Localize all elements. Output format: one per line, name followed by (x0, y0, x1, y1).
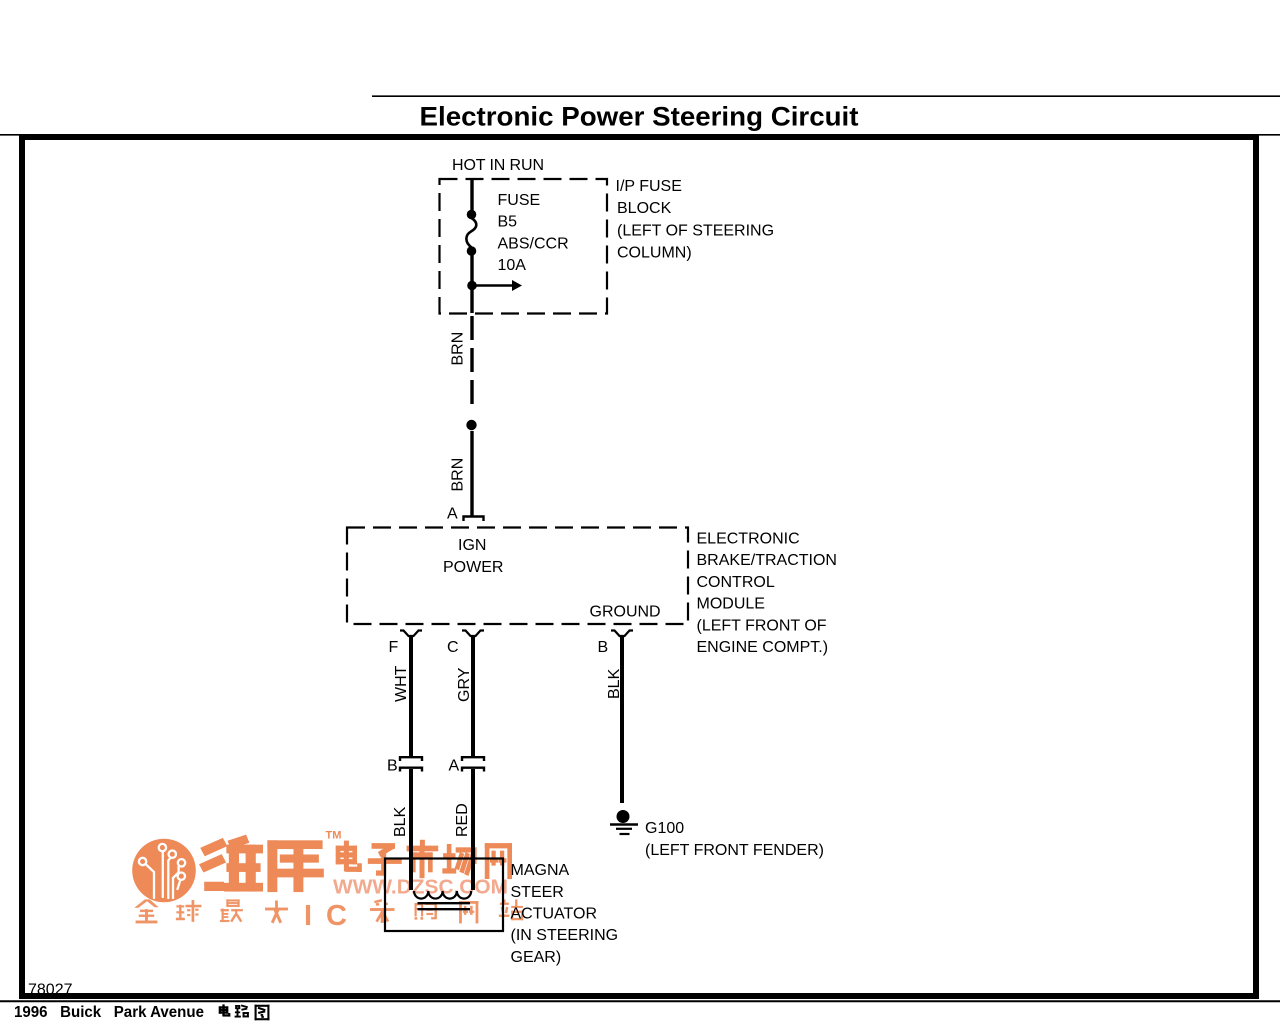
svg-text:Electronic Power Steering Circ: Electronic Power Steering Circuit (420, 102, 859, 132)
svg-text:GRY: GRY (456, 667, 473, 702)
svg-text:(LEFT FRONT FENDER): (LEFT FRONT FENDER) (645, 842, 824, 859)
svg-text:TM: TM (326, 830, 342, 842)
svg-text:78027: 78027 (28, 982, 73, 999)
svg-text:GROUND: GROUND (590, 603, 661, 620)
svg-text:POWER: POWER (443, 559, 503, 576)
svg-text:WWW.DZSC.COM: WWW.DZSC.COM (333, 876, 508, 899)
svg-text:BRAKE/TRACTION: BRAKE/TRACTION (697, 552, 837, 569)
svg-text:ABS/CCR: ABS/CCR (498, 235, 569, 252)
svg-text:I: I (304, 900, 312, 932)
svg-text:(LEFT OF STEERING: (LEFT OF STEERING (617, 222, 774, 239)
svg-text:B5: B5 (498, 214, 518, 231)
svg-text:B: B (387, 758, 398, 775)
svg-text:IGN: IGN (458, 537, 486, 554)
svg-text:ENGINE COMPT.): ENGINE COMPT.) (697, 639, 829, 656)
svg-text:MODULE: MODULE (697, 596, 765, 613)
svg-text:1996 Buick Park Avenue: 1996 Buick Park Avenue (14, 1004, 204, 1021)
svg-text:BLK: BLK (392, 806, 409, 837)
svg-text:G100: G100 (645, 820, 684, 837)
svg-text:BRN: BRN (450, 458, 467, 492)
svg-text:WHT: WHT (393, 665, 410, 702)
svg-text:ACTUATOR: ACTUATOR (511, 906, 598, 923)
svg-text:STEER: STEER (511, 884, 564, 901)
svg-text:C: C (326, 900, 347, 932)
svg-text:B: B (598, 639, 609, 656)
svg-text:BLK: BLK (606, 668, 623, 699)
svg-text:HOT IN RUN: HOT IN RUN (452, 157, 544, 174)
svg-text:10A: 10A (498, 257, 527, 274)
svg-text:ELECTRONIC: ELECTRONIC (697, 530, 800, 547)
svg-text:COLUMN): COLUMN) (617, 245, 692, 262)
svg-text:BLOCK: BLOCK (617, 200, 672, 217)
svg-text:RED: RED (454, 803, 471, 837)
svg-text:CONTROL: CONTROL (697, 574, 775, 591)
svg-text:C: C (447, 639, 459, 656)
svg-text:A: A (447, 506, 458, 523)
svg-text:(LEFT FRONT OF: (LEFT FRONT OF (697, 617, 827, 634)
svg-text:FUSE: FUSE (498, 192, 541, 209)
svg-text:A: A (449, 758, 460, 775)
svg-text:GEAR): GEAR) (511, 949, 562, 966)
svg-text:MAGNA: MAGNA (511, 862, 570, 879)
svg-text:BRN: BRN (450, 332, 467, 366)
svg-text:F: F (389, 639, 399, 656)
svg-text:(IN STEERING: (IN STEERING (511, 927, 619, 944)
svg-text:I/P FUSE: I/P FUSE (616, 178, 682, 195)
